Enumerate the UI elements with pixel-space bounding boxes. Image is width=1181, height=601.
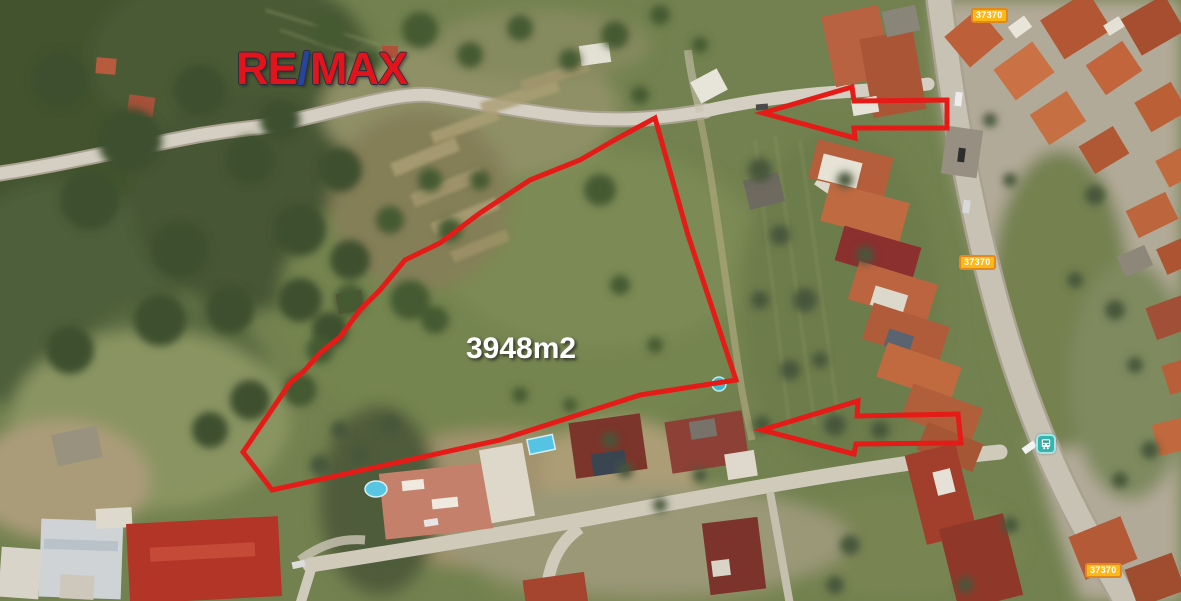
route-badge: 37370	[1085, 563, 1122, 578]
route-badge: 37370	[971, 8, 1008, 23]
remax-logo: RE/MAX	[236, 46, 407, 91]
arrow-left-top-icon	[763, 87, 947, 138]
arrow-left-bottom-icon	[762, 401, 961, 454]
bus-glyph	[1040, 438, 1052, 450]
remax-logo-slash: /	[297, 43, 311, 94]
bus-stop-icon[interactable]	[1036, 434, 1056, 454]
annotations-layer	[0, 0, 1181, 601]
plot-area-label: 3948m2	[466, 332, 576, 366]
plot-boundary	[243, 118, 736, 490]
map-canvas: RE/MAX 3948m2 37370 37370 37370	[0, 0, 1181, 601]
remax-logo-re: RE	[236, 43, 297, 94]
route-badge: 37370	[959, 255, 996, 270]
remax-logo-max: MAX	[310, 43, 407, 94]
